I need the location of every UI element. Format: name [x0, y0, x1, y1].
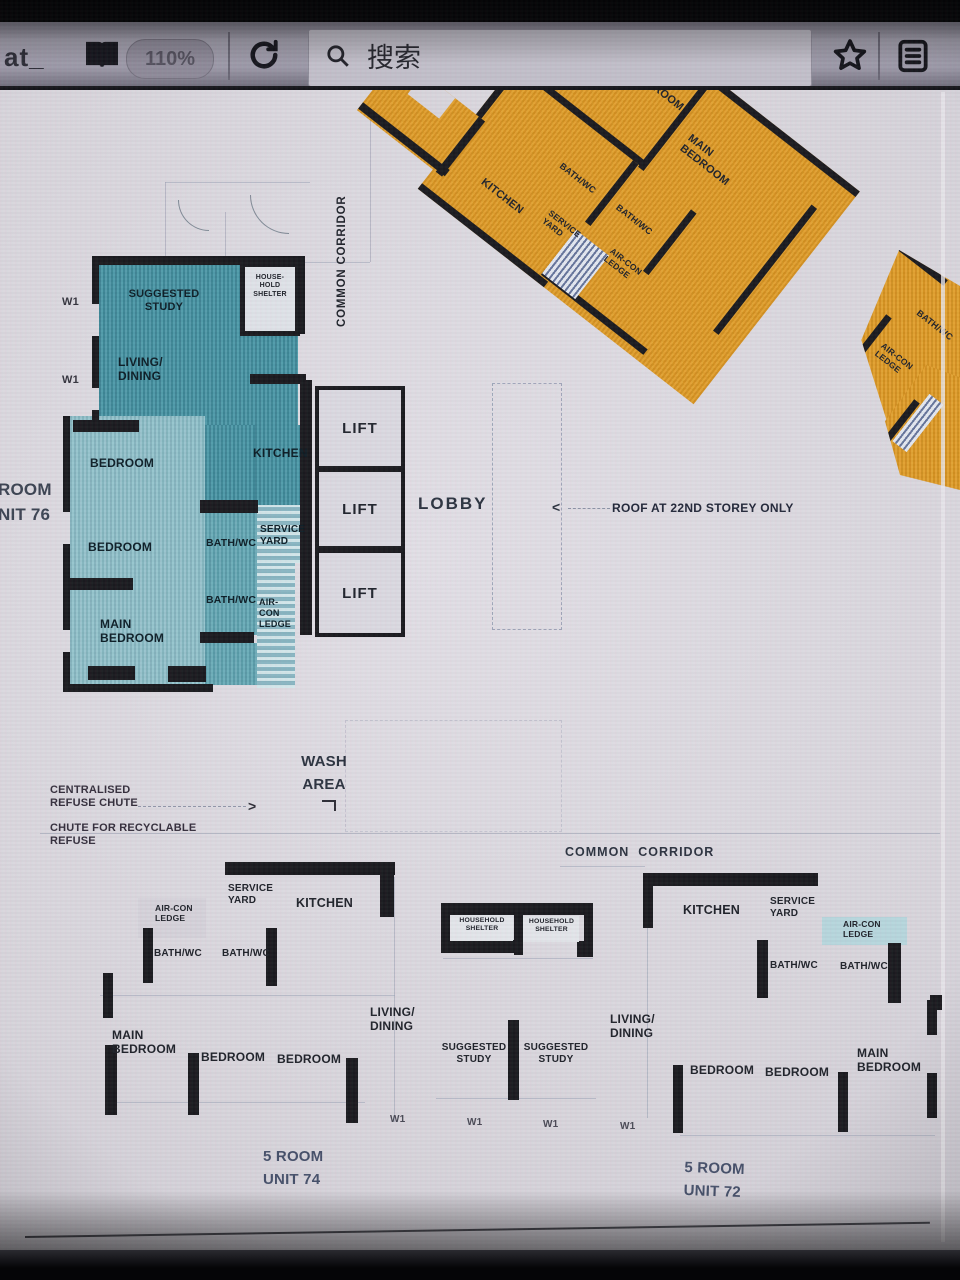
screen-photo: BEDROOM MAIN BEDROOM KITCHEN BATH/WC BAT… — [0, 0, 960, 1280]
wall-segment — [346, 1058, 358, 1123]
plan-line — [560, 866, 645, 867]
lift-label: LIFT — [342, 585, 378, 602]
room-label-suggested-study: SUGGESTED STUDY — [108, 288, 220, 314]
browser-toolbar: at_ 110% — [0, 22, 960, 88]
wall-segment — [441, 940, 514, 953]
room-label-bedroom: BEDROOM — [201, 1050, 265, 1064]
lift-box-3: LIFT — [315, 549, 405, 637]
room-label-household-shelter: HOUSEHOLD SHELTER — [452, 917, 512, 933]
search-field[interactable] — [308, 29, 812, 87]
room-label-main-bedroom: MAIN BEDROOM — [112, 1028, 176, 1057]
plan-line — [680, 1135, 935, 1136]
toolbar-separator — [228, 32, 230, 80]
common-corridor-label-horizontal: COMMON CORRIDOR — [565, 845, 714, 860]
window-label-w1: W1 — [467, 1117, 482, 1129]
room-label-bath-wc: BATH/WC — [206, 594, 256, 607]
wash-area-label: WASH AREA — [293, 750, 355, 797]
roof-note-label: ROOF AT 22ND STOREY ONLY — [612, 501, 794, 515]
room-label-bath-wc: BATH/WC — [222, 948, 270, 960]
common-corridor-label-vertical: COMMON CORRIDOR — [336, 182, 350, 327]
wall-segment — [88, 666, 135, 680]
search-input[interactable] — [365, 42, 811, 75]
wall-segment — [67, 578, 133, 590]
window-label-w1: W1 — [62, 374, 79, 387]
wall-segment — [673, 1065, 683, 1133]
toolbar-shadow-line — [0, 86, 960, 90]
wall-segment — [63, 684, 213, 692]
plan-line — [165, 182, 310, 183]
wall-segment — [168, 666, 206, 682]
room-label-aircon-ledge: AIR-CON LEDGE — [602, 246, 644, 285]
unit74-name-label: 5 ROOM UNIT 74 — [263, 1146, 323, 1191]
unit72-name-label: 5 ROOM UNIT 72 — [683, 1157, 745, 1204]
window-label-w1: W1 — [620, 1121, 635, 1133]
wall-segment — [103, 973, 113, 1018]
room-label-service-yard: SERVICE YARD — [260, 524, 305, 548]
wall-segment — [92, 256, 99, 304]
plan-line — [165, 182, 166, 260]
lift-box-2: LIFT — [315, 468, 405, 550]
screen-top-bezel — [0, 0, 960, 22]
wall-segment — [643, 873, 818, 886]
room-label-aircon-ledge: AIR- CON LEDGE — [259, 597, 291, 629]
room-label-suggested-study: SUGGESTED STUDY — [516, 1042, 596, 1066]
room-label-main-bedroom: MAIN BEDROOM — [857, 1046, 921, 1075]
plan-line — [105, 1102, 365, 1103]
wall-segment — [927, 1000, 937, 1035]
room-label-bath-wc: BATH/WC — [557, 161, 598, 196]
room-label-living-dining: LIVING/ DINING — [610, 1012, 655, 1041]
room-label-bath-wc: BATH/WC — [614, 202, 655, 237]
wash-area-outline — [345, 720, 562, 832]
wall-segment — [300, 380, 312, 635]
wall-segment — [92, 336, 99, 388]
wall-segment — [927, 1073, 937, 1118]
room-label-main-bedroom: MAIN BEDROOM — [677, 132, 740, 189]
recyclable-chute-label: CHUTE FOR RECYCLABLE REFUSE — [50, 822, 196, 848]
plan-line — [394, 877, 395, 1122]
unit76-bath-lower — [205, 643, 257, 685]
wall-segment — [188, 1053, 199, 1115]
room-label-bath-wc: BATH/WC — [914, 308, 955, 343]
page-edge-strip — [941, 92, 945, 1242]
lobby-label: LOBBY — [418, 494, 488, 514]
wall-segment — [73, 420, 139, 432]
plan-line — [300, 262, 370, 263]
room-label-living-dining: LIVING/ DINING — [118, 355, 163, 384]
refuse-leader-line — [138, 806, 246, 807]
wall-segment — [643, 873, 653, 928]
search-icon — [325, 43, 351, 74]
chute-symbol — [322, 800, 336, 811]
window-label-w1: W1 — [62, 296, 79, 309]
wall-segment — [757, 940, 768, 998]
bookmarks-list-icon[interactable] — [894, 36, 932, 81]
wall-segment — [63, 416, 70, 512]
plan-line — [225, 212, 226, 262]
roof-leader-line — [568, 508, 610, 509]
room-label-suggested-study: SUGGESTED STUDY — [434, 1042, 514, 1066]
unit76-bath-block — [205, 510, 257, 635]
room-label-main-bedroom: MAIN BEDROOM — [100, 617, 164, 646]
roof-arrow: < — [552, 499, 560, 516]
window-label-w1: W1 — [390, 1114, 405, 1126]
lift-label: LIFT — [342, 420, 378, 437]
screen-bottom-bezel — [0, 1250, 960, 1280]
wall-segment — [643, 209, 697, 275]
unit76-hall-area — [205, 425, 255, 510]
room-label-household-shelter: HOUSEHOLD SHELTER — [524, 918, 579, 934]
room-label-household-shelter: HOUSE- HOLD SHELTER — [249, 274, 291, 299]
room-label-bedroom: BEDROOM — [765, 1065, 829, 1079]
wall-segment — [838, 1072, 848, 1132]
wall-segment — [577, 941, 593, 957]
wall-segment — [200, 632, 254, 643]
room-label-service-yard: SERVICE YARD — [228, 883, 273, 907]
url-fragment-text: at_ — [4, 42, 45, 73]
room-label-bath-wc: BATH/WC — [840, 961, 888, 973]
wall-segment — [143, 928, 153, 983]
room-label-bedroom: BEDROOM — [277, 1052, 341, 1066]
room-label-bedroom: BEDROOM — [90, 456, 154, 470]
lift-label: LIFT — [342, 501, 378, 518]
room-label-kitchen: KITCHEN — [253, 446, 308, 460]
room-label-service-yard: SERVICE YARD — [770, 896, 815, 920]
plan-line — [100, 995, 395, 996]
room-label-bath-wc: BATH/WC — [154, 948, 202, 960]
unit76-name-label: ROOM NIT 76 — [0, 478, 52, 527]
wall-segment — [514, 903, 523, 955]
reader-mode-icon[interactable] — [84, 39, 120, 76]
lift-box-1: LIFT — [315, 386, 405, 470]
room-label-aircon-ledge: AIR-CON LEDGE — [155, 903, 193, 923]
wall-segment — [225, 862, 395, 875]
room-label-aircon-ledge: AIR-CON LEDGE — [843, 919, 881, 939]
room-label-aircon-ledge: AIR-CON LEDGE — [873, 341, 915, 380]
wall-segment — [584, 903, 593, 943]
zoom-level-button[interactable]: 110% — [126, 39, 214, 79]
refuse-arrow: > — [248, 798, 256, 815]
zoom-level-value: 110% — [145, 48, 195, 71]
plan-line — [443, 958, 593, 959]
room-label-kitchen: KITCHEN — [478, 176, 526, 217]
toolbar-separator — [878, 32, 880, 80]
wall-segment — [380, 862, 394, 917]
room-label-kitchen: KITCHEN — [296, 896, 353, 911]
bookmark-star-icon[interactable] — [830, 36, 870, 81]
window-label-w1: W1 — [543, 1119, 558, 1131]
room-label-bedroom: BEDROOM — [690, 1063, 754, 1077]
room-label-bath-wc: BATH/WC — [206, 537, 256, 550]
room-label-bath-wc: BATH/WC — [770, 960, 818, 972]
wall-segment — [200, 500, 258, 513]
wall-segment — [250, 374, 306, 384]
room-label-kitchen: KITCHEN — [683, 903, 740, 918]
wall-segment — [888, 943, 901, 1003]
reload-icon[interactable] — [246, 37, 282, 78]
room-label-bedroom: BEDROOM — [88, 540, 152, 554]
refuse-chute-label: CENTRALISED REFUSE CHUTE — [50, 784, 138, 810]
room-label-living-dining: LIVING/ DINING — [370, 1005, 415, 1034]
